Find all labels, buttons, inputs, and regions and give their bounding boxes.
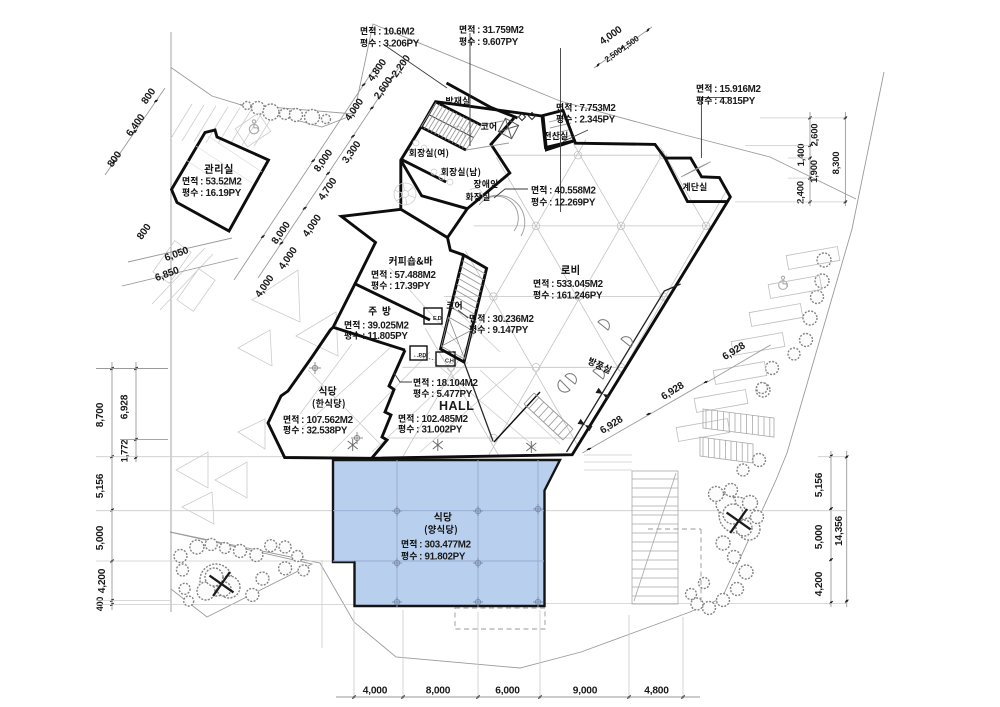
svg-text:: 57.488M2: : 57.488M2 <box>389 270 436 281</box>
svg-text:: 3.206PY: : 3.206PY <box>378 38 420 49</box>
svg-text:HALL: HALL <box>439 399 474 413</box>
svg-text:8,000: 8,000 <box>426 686 451 697</box>
svg-text:400: 400 <box>95 597 105 612</box>
svg-text:14,356: 14,356 <box>834 515 845 545</box>
svg-text:4,800: 4,800 <box>644 686 669 697</box>
svg-text:: 91.802PY: : 91.802PY <box>419 551 466 562</box>
svg-text:: 2.345PY: : 2.345PY <box>574 114 616 125</box>
svg-text:: 7.753M2: : 7.753M2 <box>574 103 616 114</box>
svg-text:: 31.759M2: : 31.759M2 <box>477 25 524 36</box>
svg-text:: 31.002PY: : 31.002PY <box>416 424 463 435</box>
svg-text:: 12.269PY: : 12.269PY <box>549 197 596 208</box>
svg-text:: 4.815PY: : 4.815PY <box>714 96 756 107</box>
svg-text:: 9.147PY: : 9.147PY <box>487 325 529 336</box>
svg-text:: 15.916M2: : 15.916M2 <box>714 84 761 95</box>
svg-text:C.H: C.H <box>445 359 454 365</box>
svg-text:4,200: 4,200 <box>97 568 108 593</box>
svg-text:1,900: 1,900 <box>809 160 820 183</box>
svg-text:6,928: 6,928 <box>120 394 131 419</box>
svg-text:4,000: 4,000 <box>363 686 388 697</box>
svg-text:: 30.236M2: : 30.236M2 <box>487 314 534 325</box>
svg-text:5,156: 5,156 <box>814 472 825 497</box>
svg-text:E.D: E.D <box>433 316 442 322</box>
svg-text:5,156: 5,156 <box>95 473 106 498</box>
svg-text:: 53.52M2: : 53.52M2 <box>200 176 242 187</box>
svg-text:: 17.39PY: : 17.39PY <box>389 281 431 292</box>
svg-text:: 40.558M2: : 40.558M2 <box>549 185 596 196</box>
svg-text:5,000: 5,000 <box>95 525 106 550</box>
svg-text:: 102.485M2: : 102.485M2 <box>416 414 469 425</box>
svg-text:: 16.19PY: : 16.19PY <box>200 188 242 199</box>
svg-text:: 161.246PY: : 161.246PY <box>551 290 603 301</box>
svg-text:1,400: 1,400 <box>796 144 807 167</box>
svg-text:4,200: 4,200 <box>814 571 825 596</box>
svg-text:2,600: 2,600 <box>810 124 821 147</box>
svg-text:P.D: P.D <box>419 353 427 359</box>
svg-text:: 5.477PY: : 5.477PY <box>431 389 473 400</box>
svg-text:: 39.025M2: : 39.025M2 <box>362 320 409 331</box>
svg-text:: 32.538PY: : 32.538PY <box>301 425 348 436</box>
svg-text:6,000: 6,000 <box>495 686 520 697</box>
svg-text:: 303.477M2: : 303.477M2 <box>419 539 472 550</box>
svg-text:: 107.562M2: : 107.562M2 <box>301 415 354 426</box>
svg-text:8,300: 8,300 <box>831 152 842 175</box>
svg-text:: 9.607PY: : 9.607PY <box>477 37 519 48</box>
svg-text:8,700: 8,700 <box>95 402 106 427</box>
svg-text:: 18.104M2: : 18.104M2 <box>431 378 478 389</box>
svg-text:5,000: 5,000 <box>814 524 825 549</box>
svg-text:: 10.6M2: : 10.6M2 <box>378 26 415 37</box>
svg-text:9,000: 9,000 <box>573 686 598 697</box>
svg-text:: 533.045M2: : 533.045M2 <box>551 279 604 290</box>
svg-text:1,772: 1,772 <box>120 440 131 463</box>
svg-text:2,400: 2,400 <box>795 181 806 204</box>
svg-text:: 11.805PY: : 11.805PY <box>362 331 408 342</box>
